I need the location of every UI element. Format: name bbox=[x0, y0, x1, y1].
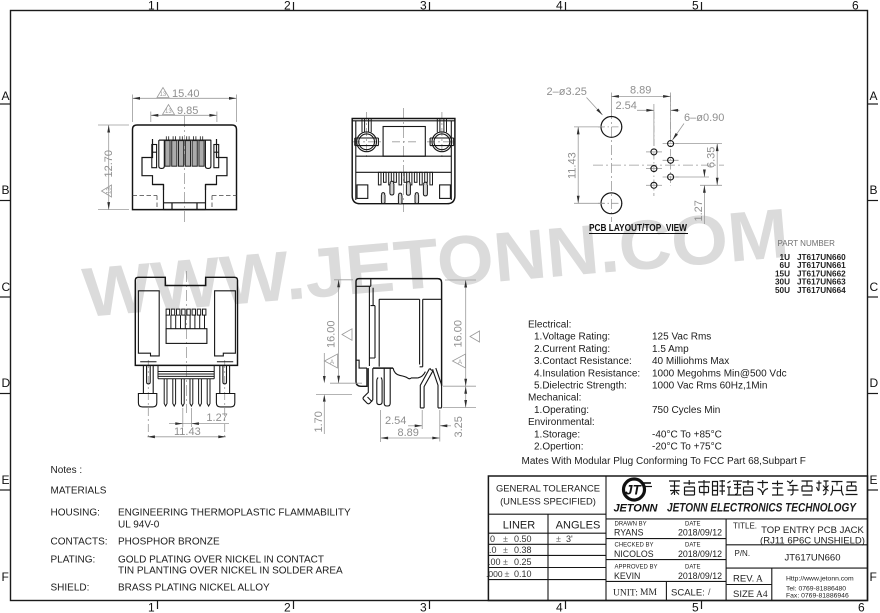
svg-text:13: 13 bbox=[160, 92, 167, 98]
svg-text:0.38: 0.38 bbox=[514, 545, 532, 555]
svg-text:6.35: 6.35 bbox=[706, 147, 718, 168]
svg-text:4.Insulation Resistance:: 4.Insulation Resistance: bbox=[534, 368, 640, 379]
svg-text:2018/09/12: 2018/09/12 bbox=[678, 528, 722, 538]
svg-text:B: B bbox=[2, 183, 10, 197]
svg-text:15.40: 15.40 bbox=[172, 88, 200, 100]
svg-text:5: 5 bbox=[692, 0, 699, 13]
svg-text:0.25: 0.25 bbox=[514, 557, 532, 567]
svg-text:13: 13 bbox=[107, 187, 113, 194]
svg-text:4: 4 bbox=[556, 601, 563, 613]
svg-text:DATE: DATE bbox=[685, 543, 701, 549]
svg-text:9.85: 9.85 bbox=[177, 105, 198, 117]
svg-text:2.Current Rating:: 2.Current Rating: bbox=[534, 344, 610, 355]
svg-text:5.Dielectric Strength:: 5.Dielectric Strength: bbox=[534, 381, 627, 392]
svg-text:C: C bbox=[870, 280, 879, 294]
svg-text:Mechanical:: Mechanical: bbox=[528, 393, 581, 404]
svg-text:Http://www.jetonn.com: Http://www.jetonn.com bbox=[786, 576, 854, 583]
svg-text:11.43: 11.43 bbox=[567, 152, 579, 179]
svg-text:SIZE: SIZE bbox=[733, 589, 754, 600]
svg-text:PCB LAYOUT/TOP VIEW: PCB LAYOUT/TOP VIEW bbox=[589, 223, 688, 234]
svg-text:A: A bbox=[756, 575, 763, 585]
svg-text:TOP ENTRY PCB JACK: TOP ENTRY PCB JACK bbox=[761, 525, 864, 536]
svg-text:REV.: REV. bbox=[733, 574, 754, 585]
svg-text:±: ± bbox=[505, 569, 510, 579]
svg-text:JT617UN660: JT617UN660 bbox=[785, 553, 841, 564]
svg-text:JETONN: JETONN bbox=[614, 503, 659, 515]
svg-text:Environmental:: Environmental: bbox=[528, 417, 595, 428]
svg-text:±: ± bbox=[503, 534, 508, 544]
svg-text:1.Storage:: 1.Storage: bbox=[534, 429, 580, 440]
svg-text:1.27: 1.27 bbox=[693, 200, 705, 221]
svg-text:1: 1 bbox=[148, 601, 155, 613]
svg-text:/: / bbox=[708, 587, 711, 597]
svg-text:C: C bbox=[2, 280, 11, 294]
svg-text:PHOSPHOR BRONZE: PHOSPHOR BRONZE bbox=[118, 537, 220, 548]
svg-text:16.00: 16.00 bbox=[453, 320, 465, 348]
svg-text:UL 94V-0: UL 94V-0 bbox=[118, 520, 160, 531]
svg-text:(UNLESS SPECIFIED): (UNLESS SPECIFIED) bbox=[500, 496, 596, 507]
svg-text:40 Milliohms Max: 40 Milliohms Max bbox=[652, 356, 729, 367]
svg-text:A4: A4 bbox=[756, 590, 768, 600]
svg-text:0: 0 bbox=[490, 534, 495, 544]
svg-text:2: 2 bbox=[284, 0, 291, 13]
svg-text:.000: .000 bbox=[486, 569, 503, 579]
svg-text:2.Opertion:: 2.Opertion: bbox=[534, 442, 583, 453]
svg-text:11.43: 11.43 bbox=[174, 426, 201, 438]
svg-text:Notes :: Notes : bbox=[51, 465, 83, 476]
svg-text:Fax: 0769-81886946: Fax: 0769-81886946 bbox=[786, 593, 849, 600]
svg-text:Tel: 0769-81886480: Tel: 0769-81886480 bbox=[786, 586, 846, 593]
svg-text:F: F bbox=[870, 570, 877, 584]
svg-text:Mates With Modular Plug Confor: Mates With Modular Plug Conforming To FC… bbox=[522, 456, 806, 467]
svg-text:E: E bbox=[870, 473, 878, 487]
svg-text:2018/09/12: 2018/09/12 bbox=[678, 549, 722, 559]
svg-text:0.50: 0.50 bbox=[514, 534, 532, 544]
svg-text:CHECKED BY: CHECKED BY bbox=[615, 543, 654, 549]
svg-text:B: B bbox=[870, 183, 878, 197]
svg-text:GENERAL TOLERANCE: GENERAL TOLERANCE bbox=[496, 483, 600, 494]
svg-text:6: 6 bbox=[858, 601, 865, 613]
svg-text:.0: .0 bbox=[489, 545, 497, 555]
svg-text:3: 3 bbox=[420, 601, 427, 613]
svg-text:TIN PLANTING OVER NICKEL IN SO: TIN PLANTING OVER NICKEL IN SOLDER AREA bbox=[118, 566, 343, 577]
svg-text:PLATING:: PLATING: bbox=[51, 555, 96, 566]
svg-text:P/N.: P/N. bbox=[735, 549, 751, 558]
svg-text:12.70: 12.70 bbox=[103, 150, 115, 178]
svg-text:8.89: 8.89 bbox=[630, 85, 651, 97]
svg-text:BRASS PLATING NICKEL ALLOY: BRASS PLATING NICKEL ALLOY bbox=[118, 583, 270, 594]
svg-text:6–ø0.90: 6–ø0.90 bbox=[684, 112, 724, 124]
svg-text:13: 13 bbox=[165, 109, 172, 115]
svg-text:KEVIN: KEVIN bbox=[614, 571, 640, 581]
svg-text:3.25: 3.25 bbox=[453, 416, 465, 437]
svg-text:A: A bbox=[330, 360, 334, 366]
svg-text:JT: JT bbox=[625, 483, 643, 498]
svg-text:4: 4 bbox=[556, 0, 563, 13]
svg-text:Electrical:: Electrical: bbox=[528, 320, 571, 331]
svg-text:3': 3' bbox=[566, 534, 573, 544]
svg-text:-40°C To +85°C: -40°C To +85°C bbox=[652, 429, 722, 440]
svg-text:3.Contact Resistance:: 3.Contact Resistance: bbox=[534, 356, 632, 367]
svg-text:SHIELD:: SHIELD: bbox=[51, 583, 90, 594]
svg-text:50U: 50U bbox=[775, 286, 790, 295]
svg-text:RYANS: RYANS bbox=[614, 528, 644, 538]
svg-text:HOUSING:: HOUSING: bbox=[51, 508, 100, 519]
svg-text:±: ± bbox=[503, 557, 508, 567]
svg-text:1.Voltage Rating:: 1.Voltage Rating: bbox=[534, 332, 610, 343]
svg-text:A: A bbox=[458, 360, 462, 366]
svg-text:GOLD PLATING OVER NICKEL IN CO: GOLD PLATING OVER NICKEL IN CONTACT bbox=[118, 555, 324, 566]
svg-text:1000 Megohms Min@500 Vdc: 1000 Megohms Min@500 Vdc bbox=[652, 368, 787, 379]
svg-text:MM: MM bbox=[640, 588, 657, 598]
svg-text:DATE: DATE bbox=[685, 565, 701, 571]
svg-text:16.00: 16.00 bbox=[326, 320, 338, 348]
svg-text:1.27: 1.27 bbox=[206, 412, 227, 424]
svg-text:2.54: 2.54 bbox=[385, 415, 406, 427]
svg-text:D: D bbox=[870, 376, 879, 390]
svg-text:2.54: 2.54 bbox=[616, 100, 637, 112]
svg-text:1000 Vac Rms 60Hz,1Min: 1000 Vac Rms 60Hz,1Min bbox=[652, 381, 767, 392]
svg-text:2–ø3.25: 2–ø3.25 bbox=[547, 86, 587, 98]
svg-text:±: ± bbox=[556, 534, 561, 544]
svg-text:APPROVED BY: APPROVED BY bbox=[615, 565, 658, 571]
svg-text:1.Operating:: 1.Operating: bbox=[534, 405, 589, 416]
svg-text:5: 5 bbox=[692, 601, 699, 613]
svg-text:8.89: 8.89 bbox=[398, 427, 419, 439]
svg-text:CONTACTS:: CONTACTS: bbox=[51, 537, 108, 548]
svg-text:±: ± bbox=[503, 545, 508, 555]
svg-text:TITLE.: TITLE. bbox=[733, 522, 757, 531]
svg-text:UNIT:: UNIT: bbox=[613, 589, 638, 599]
svg-text:A: A bbox=[2, 89, 10, 103]
svg-text:ANGLES: ANGLES bbox=[556, 520, 601, 532]
svg-text:-20°C To +75°C: -20°C To +75°C bbox=[652, 442, 722, 453]
svg-text:2018/09/12: 2018/09/12 bbox=[678, 571, 722, 581]
svg-text:NICOLOS: NICOLOS bbox=[614, 549, 654, 559]
svg-text:E: E bbox=[2, 473, 10, 487]
svg-text:ENGINEERING THERMOPLASTIC FLAM: ENGINEERING THERMOPLASTIC FLAMMABILITY bbox=[118, 508, 351, 519]
svg-text:3: 3 bbox=[420, 0, 427, 13]
svg-text:6: 6 bbox=[852, 0, 859, 13]
svg-text:2: 2 bbox=[284, 601, 291, 613]
svg-text:SCALE:: SCALE: bbox=[671, 588, 705, 599]
svg-text:MATERIALS: MATERIALS bbox=[51, 486, 107, 497]
svg-text:750 Cycles Min: 750 Cycles Min bbox=[652, 405, 720, 416]
svg-text:1.70: 1.70 bbox=[313, 411, 325, 432]
svg-text:(RJ11 6P6C UNSHIELD): (RJ11 6P6C UNSHIELD) bbox=[760, 536, 865, 547]
svg-text:PART NUMBER: PART NUMBER bbox=[778, 239, 836, 248]
svg-text:D: D bbox=[2, 376, 11, 390]
svg-text:.00: .00 bbox=[488, 557, 501, 567]
svg-text:F: F bbox=[2, 570, 9, 584]
svg-text:0.10: 0.10 bbox=[514, 569, 532, 579]
svg-text:1: 1 bbox=[148, 0, 155, 13]
svg-text:JETONN ELECTRONICS TECHNOLOGY: JETONN ELECTRONICS TECHNOLOGY bbox=[667, 501, 858, 515]
svg-text:125 Vac Rms: 125 Vac Rms bbox=[652, 332, 711, 343]
svg-text:A: A bbox=[870, 89, 878, 103]
svg-text:1.5 Amp: 1.5 Amp bbox=[652, 344, 689, 355]
svg-text:LINER: LINER bbox=[503, 520, 535, 532]
svg-text:JT617UN664: JT617UN664 bbox=[797, 286, 846, 295]
